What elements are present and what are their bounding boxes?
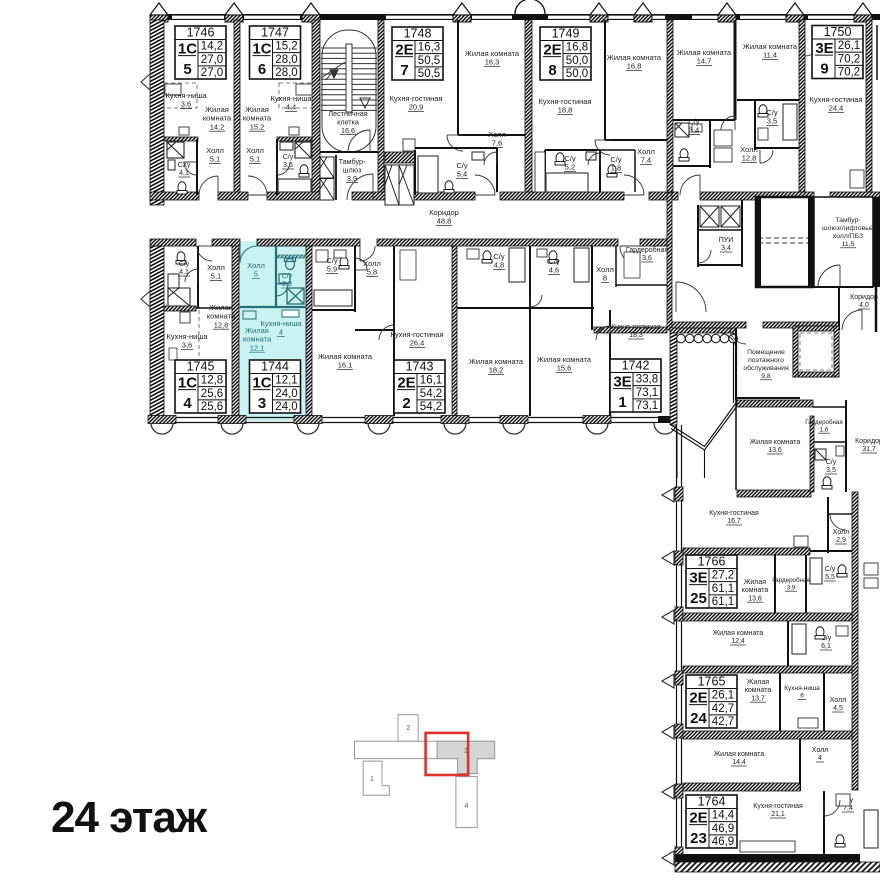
svg-text:Жилая: Жилая bbox=[245, 326, 269, 335]
svg-text:С/у: С/у bbox=[766, 108, 778, 117]
svg-text:С/у: С/у bbox=[548, 257, 560, 266]
svg-text:Кухня-гостиная: Кухня-гостиная bbox=[538, 97, 591, 106]
svg-text:14,4: 14,4 bbox=[732, 759, 746, 766]
svg-text:46,9: 46,9 bbox=[712, 823, 734, 835]
svg-text:С/у: С/у bbox=[688, 117, 700, 126]
svg-text:25,6: 25,6 bbox=[201, 388, 223, 400]
svg-text:Холл: Холл bbox=[206, 146, 224, 155]
svg-text:14,4: 14,4 bbox=[712, 810, 735, 822]
svg-text:28,0: 28,0 bbox=[275, 54, 297, 66]
svg-text:12,8: 12,8 bbox=[742, 154, 757, 163]
svg-text:16,8: 16,8 bbox=[627, 62, 642, 71]
svg-text:комната: комната bbox=[243, 335, 272, 344]
svg-text:С/у: С/у bbox=[825, 566, 836, 573]
svg-text:Холл: Холл bbox=[812, 747, 829, 754]
svg-text:26,1: 26,1 bbox=[838, 40, 860, 52]
svg-text:54,2: 54,2 bbox=[420, 388, 442, 400]
svg-text:2Е: 2Е bbox=[543, 42, 561, 59]
svg-text:13,6: 13,6 bbox=[748, 595, 762, 602]
svg-text:7,4: 7,4 bbox=[641, 156, 651, 165]
svg-text:8: 8 bbox=[548, 62, 556, 79]
svg-text:48,8: 48,8 bbox=[437, 217, 452, 226]
svg-text:Гардеробная: Гардеробная bbox=[805, 419, 842, 426]
svg-text:Помещение: Помещение bbox=[747, 349, 785, 356]
svg-text:1765: 1765 bbox=[698, 675, 726, 689]
svg-text:4,0: 4,0 bbox=[859, 302, 869, 309]
svg-text:Жилая комната: Жилая комната bbox=[537, 355, 592, 364]
svg-text:1,8: 1,8 bbox=[611, 164, 621, 173]
svg-text:комната: комната bbox=[745, 687, 772, 694]
svg-text:6,1: 6,1 bbox=[821, 643, 831, 650]
svg-text:15,6: 15,6 bbox=[557, 364, 572, 373]
svg-text:4,6: 4,6 bbox=[549, 266, 559, 275]
svg-text:Жилая комната: Жилая комната bbox=[318, 352, 373, 361]
svg-text:Жилая комната: Жилая комната bbox=[750, 439, 801, 446]
svg-text:13,7: 13,7 bbox=[751, 695, 765, 702]
svg-text:Холл: Холл bbox=[596, 265, 614, 274]
svg-text:Холл: Холл bbox=[207, 263, 225, 272]
svg-text:Кухня-гостиная: Кухня-гостиная bbox=[809, 95, 862, 104]
svg-text:Кухня-гостиная: Кухня-гостиная bbox=[390, 330, 443, 339]
svg-text:Коридор: Коридор bbox=[429, 208, 459, 217]
svg-text:2,9: 2,9 bbox=[836, 537, 846, 544]
svg-text:6: 6 bbox=[258, 61, 266, 78]
svg-text:5,9: 5,9 bbox=[327, 265, 337, 274]
svg-text:15,2: 15,2 bbox=[275, 41, 297, 53]
svg-text:С/у: С/у bbox=[564, 154, 576, 163]
svg-text:15,2: 15,2 bbox=[250, 122, 265, 131]
svg-text:20,9: 20,9 bbox=[409, 103, 424, 112]
svg-text:42,7: 42,7 bbox=[712, 716, 734, 728]
svg-text:4,5: 4,5 bbox=[833, 705, 843, 712]
svg-text:Кухня-гостиная: Кухня-гостиная bbox=[389, 94, 442, 103]
svg-text:Коридор: Коридор bbox=[855, 438, 880, 445]
svg-text:7: 7 bbox=[400, 62, 408, 79]
svg-text:18,3: 18,3 bbox=[629, 332, 643, 339]
svg-text:Гардеробная: Гардеробная bbox=[626, 246, 669, 254]
svg-text:12,8: 12,8 bbox=[201, 375, 223, 387]
svg-text:4: 4 bbox=[465, 803, 469, 810]
svg-text:16,3: 16,3 bbox=[485, 58, 500, 67]
svg-text:С/у: С/у bbox=[493, 252, 505, 261]
svg-text:3,6: 3,6 bbox=[642, 255, 652, 262]
svg-text:4: 4 bbox=[183, 395, 192, 412]
svg-text:3,4: 3,4 bbox=[721, 245, 731, 252]
svg-text:23: 23 bbox=[690, 830, 707, 847]
svg-text:50,5: 50,5 bbox=[418, 55, 440, 67]
svg-text:3Е: 3Е bbox=[613, 374, 631, 391]
svg-text:Кухня-ниша: Кухня-ниша bbox=[166, 332, 208, 341]
svg-text:73,1: 73,1 bbox=[636, 400, 658, 412]
svg-text:8: 8 bbox=[603, 274, 607, 283]
svg-text:24,0: 24,0 bbox=[275, 401, 297, 413]
svg-text:Кухня-ниша: Кухня-ниша bbox=[784, 685, 820, 692]
svg-text:Жилая комната: Жилая комната bbox=[714, 751, 765, 758]
svg-text:1С: 1С bbox=[178, 41, 197, 58]
svg-text:16,6: 16,6 bbox=[341, 126, 355, 135]
svg-text:1743: 1743 bbox=[406, 360, 434, 374]
svg-text:3,6: 3,6 bbox=[182, 341, 192, 350]
svg-text:42,7: 42,7 bbox=[712, 703, 734, 715]
svg-text:1746: 1746 bbox=[187, 26, 215, 40]
svg-text:5,2: 5,2 bbox=[565, 163, 575, 172]
svg-text:Жилая комната: Жилая комната bbox=[469, 357, 524, 366]
svg-text:С/у: С/у bbox=[610, 155, 622, 164]
svg-text:4: 4 bbox=[279, 328, 283, 337]
svg-text:24,4: 24,4 bbox=[829, 104, 844, 113]
svg-text:3,5: 3,5 bbox=[826, 467, 836, 474]
svg-text:1747: 1747 bbox=[261, 26, 289, 40]
svg-text:Кухня-гостиная: Кухня-гостиная bbox=[611, 324, 661, 331]
svg-text:5,8: 5,8 bbox=[367, 268, 377, 277]
svg-text:2Е: 2Е bbox=[689, 690, 707, 707]
svg-text:1744: 1744 bbox=[261, 360, 289, 374]
svg-text:1742: 1742 bbox=[622, 359, 650, 373]
svg-text:3,6: 3,6 bbox=[181, 100, 191, 109]
svg-text:12,1: 12,1 bbox=[275, 375, 297, 387]
svg-text:Холл: Холл bbox=[363, 259, 381, 268]
svg-text:Холл: Холл bbox=[740, 145, 758, 154]
svg-text:С/у: С/у bbox=[826, 459, 837, 466]
svg-text:3,4: 3,4 bbox=[689, 126, 699, 135]
svg-text:Жилая комната: Жилая комната bbox=[713, 630, 764, 637]
svg-text:1748: 1748 bbox=[404, 27, 432, 41]
svg-text:4,4: 4,4 bbox=[286, 103, 296, 112]
svg-text:54,2: 54,2 bbox=[420, 401, 442, 413]
svg-text:СХу: СХу bbox=[178, 162, 191, 169]
svg-text:2Е: 2Е bbox=[397, 375, 415, 392]
svg-text:3,9: 3,9 bbox=[347, 174, 357, 183]
svg-text:3,5: 3,5 bbox=[283, 162, 293, 169]
svg-text:2,9: 2,9 bbox=[282, 281, 292, 288]
svg-text:26,1: 26,1 bbox=[712, 690, 734, 702]
svg-text:5,5: 5,5 bbox=[825, 574, 835, 581]
svg-text:С/у: С/у bbox=[456, 161, 468, 170]
svg-text:3Е: 3Е bbox=[689, 570, 707, 587]
svg-text:28,0: 28,0 bbox=[275, 67, 297, 79]
svg-text:С/у: С/у bbox=[283, 154, 294, 161]
svg-text:Холл: Холл bbox=[830, 697, 847, 704]
svg-text:Жилая: Жилая bbox=[209, 303, 233, 312]
svg-text:Жилая: Жилая bbox=[245, 105, 269, 114]
svg-text:холл/ПБЗ: холл/ПБЗ bbox=[833, 233, 863, 240]
svg-text:1С: 1С bbox=[252, 41, 271, 58]
svg-text:50,0: 50,0 bbox=[566, 55, 588, 67]
svg-text:26,4: 26,4 bbox=[410, 339, 425, 348]
svg-text:комната: комната bbox=[207, 312, 236, 321]
svg-text:4,8: 4,8 bbox=[494, 261, 504, 270]
svg-text:Коридор: Коридор bbox=[850, 294, 878, 301]
svg-text:12,4: 12,4 bbox=[731, 638, 745, 645]
svg-text:5,4: 5,4 bbox=[457, 170, 467, 179]
svg-text:2Е: 2Е bbox=[689, 810, 707, 827]
svg-text:Кухня-ниша: Кухня-ниша bbox=[270, 94, 312, 103]
svg-text:21,1: 21,1 bbox=[771, 811, 785, 818]
svg-text:3Е: 3Е bbox=[815, 40, 833, 57]
svg-text:25,6: 25,6 bbox=[201, 401, 223, 413]
svg-text:27,0: 27,0 bbox=[201, 54, 223, 66]
svg-text:16,1: 16,1 bbox=[338, 361, 353, 370]
svg-text:12,1: 12,1 bbox=[250, 343, 265, 352]
svg-text:Кухня-ниша: Кухня-ниша bbox=[165, 91, 207, 100]
svg-text:61,1: 61,1 bbox=[712, 583, 734, 595]
svg-text:С/у: С/у bbox=[326, 256, 338, 265]
svg-text:25: 25 bbox=[690, 590, 707, 607]
svg-text:3: 3 bbox=[258, 395, 266, 412]
svg-text:ПУИ: ПУИ bbox=[719, 237, 734, 244]
svg-text:33,8: 33,8 bbox=[636, 374, 658, 386]
svg-text:14,2: 14,2 bbox=[210, 122, 225, 131]
svg-text:9: 9 bbox=[820, 61, 828, 78]
svg-text:27,0: 27,0 bbox=[201, 67, 223, 79]
svg-text:11,4: 11,4 bbox=[763, 51, 777, 60]
svg-text:16,8: 16,8 bbox=[566, 42, 588, 54]
svg-text:Жилая комната: Жилая комната bbox=[677, 48, 732, 57]
svg-text:Жилая комната: Жилая комната bbox=[607, 53, 662, 62]
svg-text:70,2: 70,2 bbox=[838, 67, 860, 79]
svg-text:6: 6 bbox=[800, 693, 804, 700]
svg-text:50,5: 50,5 bbox=[418, 68, 440, 80]
svg-text:18,8: 18,8 bbox=[558, 106, 573, 115]
svg-text:Жилая: Жилая bbox=[205, 105, 229, 114]
svg-text:46,9: 46,9 bbox=[712, 836, 734, 848]
svg-text:Холл: Холл bbox=[246, 146, 264, 155]
svg-text:1: 1 bbox=[618, 394, 626, 411]
svg-text:1С: 1С bbox=[252, 375, 271, 392]
svg-text:16,1: 16,1 bbox=[420, 375, 442, 387]
svg-text:Кухня-гостиная: Кухня-гостиная bbox=[709, 510, 759, 517]
svg-text:1764: 1764 bbox=[698, 795, 726, 809]
svg-text:3,5: 3,5 bbox=[767, 117, 777, 126]
svg-text:Гардеробная: Гардеробная bbox=[772, 577, 809, 584]
svg-text:70,2: 70,2 bbox=[838, 53, 860, 65]
svg-text:12,8: 12,8 bbox=[214, 320, 229, 329]
svg-text:3,9: 3,9 bbox=[787, 584, 796, 591]
svg-text:24,0: 24,0 bbox=[275, 388, 297, 400]
svg-text:комната: комната bbox=[203, 114, 232, 123]
svg-text:16,3: 16,3 bbox=[418, 42, 440, 54]
svg-text:С/у: С/у bbox=[282, 273, 293, 280]
svg-text:Жилая комната: Жилая комната bbox=[465, 49, 520, 58]
svg-text:5: 5 bbox=[183, 61, 191, 78]
svg-text:24: 24 bbox=[690, 710, 707, 727]
svg-text:5,1: 5,1 bbox=[210, 155, 220, 164]
svg-text:Жилая: Жилая bbox=[747, 679, 769, 686]
svg-text:9,8: 9,8 bbox=[761, 373, 771, 380]
svg-text:24 этаж: 24 этаж bbox=[51, 793, 208, 842]
svg-text:комната: комната bbox=[742, 587, 769, 594]
svg-text:обслуживания: обслуживания bbox=[743, 364, 789, 372]
svg-text:31,7: 31,7 bbox=[862, 446, 876, 453]
svg-text:комната: комната bbox=[243, 114, 272, 123]
svg-text:27,2: 27,2 bbox=[712, 570, 734, 582]
svg-text:Тамбур-: Тамбур- bbox=[835, 216, 860, 224]
svg-text:2: 2 bbox=[402, 395, 410, 412]
svg-text:Холл: Холл bbox=[488, 130, 506, 139]
svg-text:5,1: 5,1 bbox=[211, 272, 221, 281]
svg-text:11,5: 11,5 bbox=[842, 241, 855, 248]
svg-text:5: 5 bbox=[254, 270, 258, 279]
svg-text:4,1: 4,1 bbox=[179, 170, 189, 177]
svg-text:50,0: 50,0 bbox=[566, 68, 588, 80]
svg-text:Холл: Холл bbox=[637, 147, 655, 156]
svg-text:2: 2 bbox=[407, 725, 411, 732]
svg-text:1766: 1766 bbox=[698, 555, 726, 569]
svg-text:1749: 1749 bbox=[552, 27, 580, 41]
svg-text:4: 4 bbox=[818, 755, 822, 762]
svg-text:Жилая комната: Жилая комната bbox=[743, 42, 798, 51]
svg-text:4,1: 4,1 bbox=[179, 269, 189, 276]
svg-text:61,1: 61,1 bbox=[712, 596, 734, 608]
svg-text:С/у: С/у bbox=[179, 261, 190, 268]
svg-text:1,6: 1,6 bbox=[820, 426, 829, 433]
svg-text:шлюз/лифтовый: шлюз/лифтовый bbox=[822, 224, 874, 232]
svg-text:14,2: 14,2 bbox=[201, 41, 223, 53]
svg-text:1: 1 bbox=[370, 776, 374, 783]
svg-text:1750: 1750 bbox=[824, 25, 852, 39]
svg-text:Холл: Холл bbox=[247, 261, 265, 270]
svg-text:16,7: 16,7 bbox=[727, 518, 741, 525]
svg-text:Жилая: Жилая bbox=[744, 579, 766, 586]
svg-text:2Е: 2Е bbox=[395, 42, 413, 59]
svg-text:7,6: 7,6 bbox=[492, 139, 502, 148]
svg-text:5,1: 5,1 bbox=[250, 155, 260, 164]
svg-text:Холл: Холл bbox=[833, 529, 850, 536]
svg-text:14,7: 14,7 bbox=[697, 57, 712, 66]
svg-text:13,6: 13,6 bbox=[768, 447, 782, 454]
svg-text:Кухня-гостиная: Кухня-гостиная bbox=[753, 803, 803, 810]
svg-text:поэтажного: поэтажного bbox=[748, 357, 784, 364]
svg-text:73,1: 73,1 bbox=[636, 387, 658, 399]
svg-text:1С: 1С bbox=[178, 375, 197, 392]
svg-text:1745: 1745 bbox=[187, 360, 215, 374]
svg-text:18,2: 18,2 bbox=[489, 366, 504, 375]
